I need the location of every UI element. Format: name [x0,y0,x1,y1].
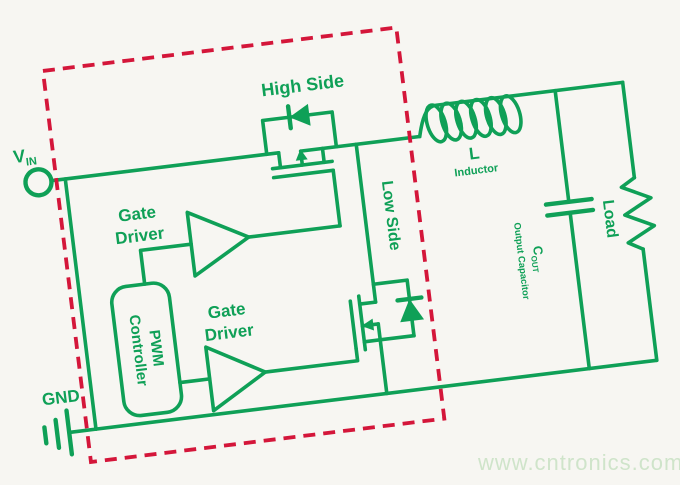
low-side-label: Low Side [378,180,403,252]
coil-loop [482,95,510,137]
ground-symbol [43,407,99,457]
ground-bar-mid [56,420,59,448]
cap-bottom-lead [570,213,589,369]
ls-drain-contact [360,302,376,304]
ls-drain-riser [356,144,375,302]
cap-name-label: Output Capacitor [511,222,531,301]
gate-driver-top-label-line2: Driver [114,223,165,248]
output-capacitor [532,88,612,372]
high-side-mosfet [261,101,346,234]
inductor-ref-label: L [468,143,481,163]
ls-gate-bar [350,301,356,349]
inductor-coil [422,93,526,145]
hs-gate-lead [333,170,340,226]
hs-source-contact [322,148,324,162]
gnd-label: GND [41,386,81,409]
gd-top-triangle [187,205,252,276]
hs-source-tie [301,147,337,151]
vin-terminal [24,168,53,197]
pwm-label-line2: Controller [125,314,151,387]
coil-loop [467,97,495,139]
vin-label: VIN [12,144,38,170]
ls-source-lead [380,340,387,394]
hs-diode-cathode-bar [288,106,291,128]
hs-drain-contact [279,153,281,168]
gd-bottom-output-wire [264,349,358,372]
coil-loop [452,99,480,141]
ls-diode-cathode-bar [398,297,422,300]
load-bottom-lead [643,249,657,360]
vin-bus-wire [51,153,278,181]
pwm-label: PWM Controller [125,312,168,388]
cap-top-lead [555,91,569,202]
inductor-name-label: Inductor [454,162,500,179]
load-zigzag [620,176,657,251]
gd-bottom-input-wire [180,379,210,383]
circuit-diagram: VIN High Side Gate Driver Gate Driver PW… [0,0,680,485]
gd-top-output-wire [249,226,340,237]
vin-terminal-circle [24,168,53,197]
cap-ref-label: COUT [528,245,548,273]
ground-bar-long [67,411,72,455]
gate-driver-bottom-label-line2: Driver [204,320,255,345]
ic-boundary-box [43,28,444,462]
gd-top-input-wire [141,244,196,284]
low-side-mosfet [331,139,432,397]
coil-loop [422,103,450,145]
ls-body-diode [373,279,425,340]
coil-loop [497,93,525,135]
ground-stub-wire [69,429,96,432]
circuit-diagram-page: VIN High Side Gate Driver Gate Driver PW… [0,0,680,485]
high-side-label: High Side [260,70,345,100]
watermark: www.cntronics.com [477,450,680,475]
coil-loop [437,101,465,143]
switch-node-wire [336,136,419,146]
gd-bottom-triangle [206,340,269,410]
ls-source-contact [364,336,414,342]
tilted-diagram: VIN High Side Gate Driver Gate Driver PW… [1,0,674,467]
gate-driver-bottom-label-line1: Gate [207,299,247,322]
cap-label: COUT Output Capacitor [511,219,551,300]
hs-gate-bar [274,170,334,177]
gate-driver-top [137,194,345,284]
cap-plate-top [546,199,592,205]
load-label: Load [599,199,621,239]
load-top-lead [623,82,635,177]
ls-body-tie [378,324,380,340]
gate-driver-top-label-line1: Gate [117,202,157,225]
ground-bar-short [44,427,46,443]
